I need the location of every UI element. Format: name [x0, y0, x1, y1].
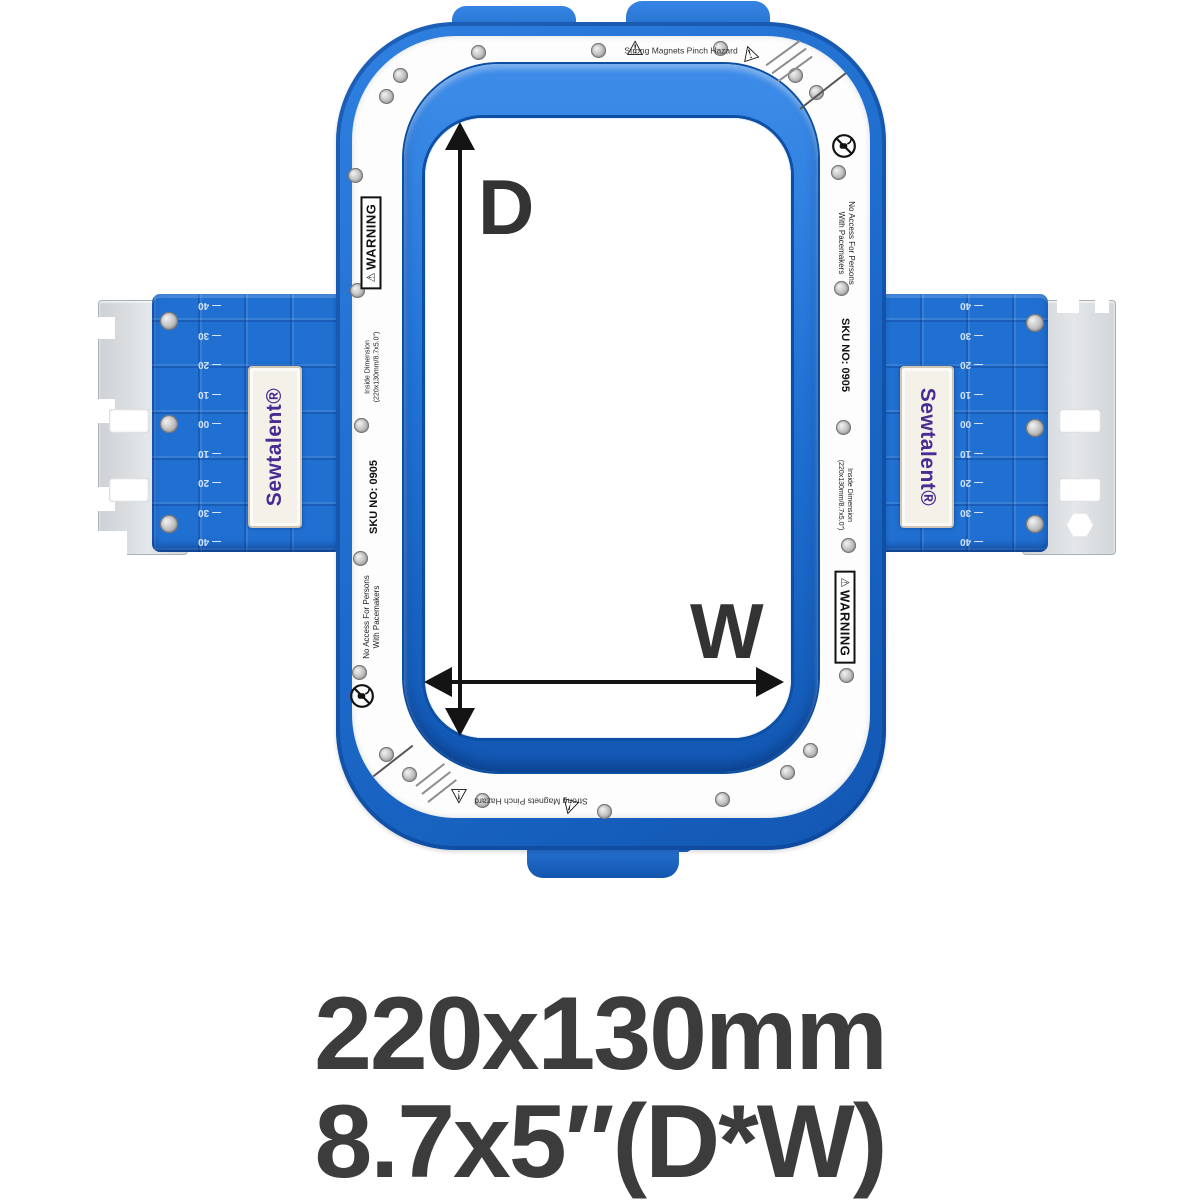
right-brand-plate: Sewtalent®: [900, 366, 954, 528]
ruler-tick: 40: [198, 300, 221, 310]
no-pacemaker-icon: [349, 683, 375, 709]
screw: [379, 89, 394, 104]
brand-logo: Sewtalent®: [263, 388, 287, 507]
screw: [836, 420, 851, 435]
width-dimension-label: W: [690, 592, 764, 670]
screw: [841, 538, 856, 553]
screw: [591, 43, 606, 58]
arm-screw: [1026, 314, 1044, 332]
ruler-tick: 10: [198, 389, 221, 399]
ruler-tick: 20: [198, 359, 221, 369]
product-image: 40 30 20 10 00 10 20 30 40 Sewtalent® 40…: [0, 0, 1200, 1200]
ruler-tick: 20: [960, 477, 983, 487]
ruler-tick: 00: [960, 418, 983, 428]
sku-label: SKU NO: 0905: [368, 460, 380, 534]
ruler-tick: 10: [198, 448, 221, 458]
ruler-tick: 30: [198, 330, 221, 340]
arm-screw: [160, 415, 178, 433]
screw: [348, 168, 363, 183]
bracket-notch: [1057, 299, 1079, 313]
bracket-slot: [1059, 478, 1101, 502]
pacemaker-warning-label: No Access For Persons With Pacemakers: [836, 201, 856, 285]
right-arm-ruler: 40 30 20 10 00 10 20 30 40: [950, 300, 994, 546]
screw: [715, 792, 730, 807]
width-arrow-shaft: [448, 680, 760, 684]
ruler-tick: 40: [960, 300, 983, 310]
brand-logo: Sewtalent®: [915, 388, 939, 507]
inside-dimension-label: Inside Dimension (220x130mm/8.7x5.0"): [364, 332, 382, 403]
screw: [597, 804, 612, 819]
no-pacemaker-icon: [831, 133, 857, 159]
size-caption-inches: 8.7x5″(D*W): [0, 1090, 1200, 1194]
screw: [352, 665, 367, 680]
screw: [780, 765, 795, 780]
screw: [803, 743, 818, 758]
ruler-tick: 20: [960, 359, 983, 369]
ruler-tick: 30: [960, 330, 983, 340]
screw: [831, 165, 846, 180]
strong-magnets-label-top: Strong Magnets Pinch Hazard: [624, 45, 737, 56]
warning-triangle-icon: ⚠: [839, 578, 852, 588]
bracket-notch: [1095, 299, 1109, 313]
ruler-tick: 30: [198, 507, 221, 517]
screw: [354, 418, 369, 433]
bracket-notch: [97, 531, 127, 555]
arm-screw: [1026, 419, 1044, 437]
depth-arrow-head-down: [445, 708, 475, 736]
depth-dimension-label: D: [478, 168, 534, 246]
left-arm-ruler: 40 30 20 10 00 10 20 30 40: [188, 300, 232, 546]
size-caption-mm: 220x130mm: [0, 982, 1200, 1086]
left-arm: [152, 294, 342, 552]
ruler-tick: 20: [198, 477, 221, 487]
left-brand-plate: Sewtalent®: [248, 366, 302, 528]
ruler-tick: 40: [198, 536, 221, 546]
depth-arrow-shaft: [458, 146, 462, 712]
screw: [471, 45, 486, 60]
warning-triangle-icon: ⚠: [450, 785, 468, 805]
ruler-tick: 10: [960, 448, 983, 458]
ruler-tick: 40: [960, 536, 983, 546]
ruler-tick: 30: [960, 507, 983, 517]
sku-label: SKU NO: 0905: [839, 318, 851, 392]
bracket-slot: [109, 478, 149, 502]
warning-triangle-icon: ⚠: [365, 272, 378, 282]
bracket-notch: [97, 317, 115, 339]
bracket-hex-hole: [1067, 513, 1093, 537]
screw: [402, 767, 417, 782]
bracket-slot: [109, 409, 149, 433]
ruler-tick: 00: [198, 418, 221, 428]
inside-dimension-label: Inside Dimension (220x130mm/8.7x5.0"): [835, 460, 853, 531]
screw: [353, 551, 368, 566]
screw: [839, 668, 854, 683]
arm-screw: [160, 515, 178, 533]
arm-screw: [160, 312, 178, 330]
arm-screw: [1026, 515, 1044, 533]
screw: [393, 68, 408, 83]
warning-label: ⚠ WARNING: [835, 571, 856, 664]
ruler-tick: 10: [960, 389, 983, 399]
pacemaker-warning-label: No Access For Persons With Pacemakers: [362, 575, 382, 659]
bracket-slot: [1059, 409, 1101, 433]
warning-label: ⚠ WARNING: [361, 197, 382, 290]
